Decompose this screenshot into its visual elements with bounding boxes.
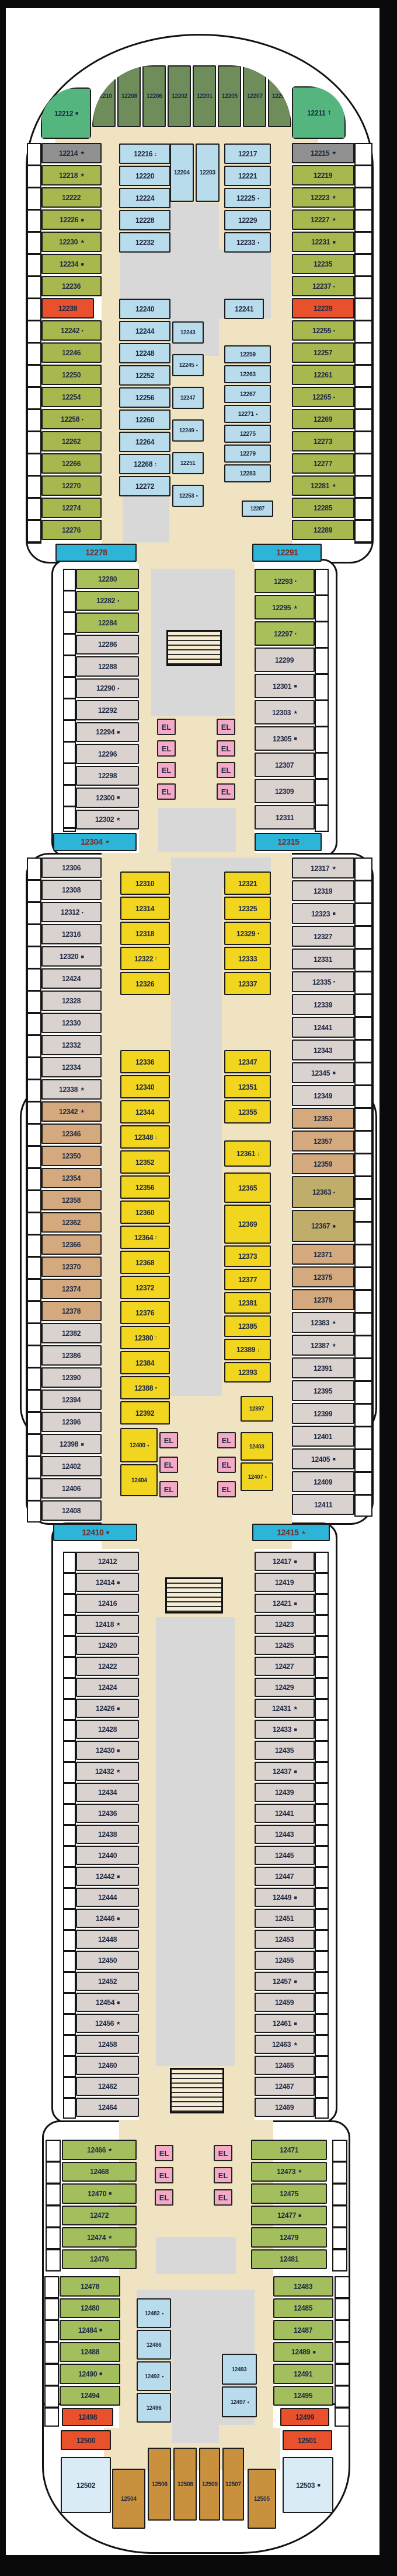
cabin-number: 12400 (130, 1442, 145, 1449)
cabin-number: 12363 (312, 1188, 331, 1196)
cabin-marker-q: ■ (117, 1748, 120, 1753)
cabin-12505: 12505 (248, 2469, 276, 2529)
cabin-number: 12344 (135, 1108, 154, 1116)
cabin-marker-s: ★ (80, 1108, 85, 1115)
cabin-12222: 12222 (41, 187, 102, 208)
cabin-marker-d: • (265, 1474, 267, 1480)
cabin-number: 12386 (62, 1351, 81, 1360)
cabin-12357: 12357 (292, 1130, 354, 1151)
cabin-marker-d: • (117, 598, 119, 604)
balcony-strip (335, 2276, 350, 2427)
cabin-number: 12221 (238, 171, 257, 180)
balcony-strip (315, 1552, 329, 2119)
cabin-12429: 12429 (255, 1678, 315, 1697)
cabin-number: 12210 (96, 93, 112, 100)
cabin-12306: 12306 (41, 857, 102, 878)
cabin-marker-s: ★ (332, 150, 336, 156)
cabin-number: 12224 (135, 194, 154, 202)
cabin-12457: 12457■ (255, 1972, 315, 1991)
cabin-12441: 12441 (255, 1804, 315, 1823)
cabin-number: 12255 (312, 326, 331, 335)
cabin-12423: 12423 (255, 1615, 315, 1634)
cabin-marker-c: : (155, 1134, 157, 1140)
corridor-fore-teal-row (137, 544, 253, 563)
cabin-marker-d: • (117, 685, 119, 691)
cabin-12477: 12477■ (251, 2206, 327, 2226)
cabin-12509: 12509 (199, 2448, 220, 2521)
cabin-12475: 12475 (251, 2183, 327, 2204)
cabin-marker-s: ★ (332, 194, 336, 201)
cabin-number: 12438 (98, 1830, 117, 1839)
stern-vert-12505: 12505 (248, 2469, 276, 2529)
cabin-12228: 12228 (119, 210, 170, 230)
cabin-12499: 12499 (280, 2408, 329, 2426)
cabin-12399: 12399 (292, 1403, 354, 1424)
elevator-icon: EL (217, 1432, 236, 1448)
cabin-12203: 12203 (196, 143, 220, 202)
mid-port-inner-a: 12310123141231812322:12326 (120, 871, 170, 995)
cabin-12386: 12386 (41, 1345, 102, 1366)
cabin-12497: 12497• (222, 2386, 257, 2417)
cabin-12298: 12298 (76, 766, 139, 786)
cabin-number: 12302 (95, 815, 114, 824)
cabin-12241: 12241 (224, 299, 264, 319)
cabin-12257: 12257 (292, 342, 354, 363)
cabin-number: 12366 (62, 1240, 81, 1249)
fore-stbd-outer: 12215★1221912223★12227★12231■1223512237•… (292, 143, 354, 540)
cabin-number: 12266 (62, 459, 81, 468)
cabin-number: 12349 (314, 1091, 332, 1100)
cabin-marker-q: ■ (106, 1529, 109, 1535)
cabin-12445: 12445 (255, 1846, 315, 1865)
frame-bottom (0, 2555, 397, 2576)
cabin-marker-s: ★ (116, 1768, 121, 1774)
cabin-12268: 12268: (119, 454, 170, 474)
cabin-number: 12410 (82, 1528, 103, 1538)
cabin-12460: 12460 (76, 2056, 139, 2075)
cabin-marker-q: ■ (109, 2190, 112, 2196)
teal-bar-12304: 12304★ (53, 833, 137, 851)
cabin-12226: 12226■ (41, 209, 102, 230)
cabin-12340: 12340 (120, 1075, 170, 1098)
cabin-number: 12485 (294, 2304, 312, 2312)
cabin-12419: 12419 (255, 1573, 315, 1592)
cabin-number: 12380 (134, 1333, 153, 1342)
cabin-number: 12325 (238, 904, 257, 913)
cabin-number: 12463 (272, 2040, 291, 2049)
cabin-12293: 12293• (255, 569, 315, 593)
cabin-12408: 12408 (41, 1500, 102, 1521)
cabin-number: 12500 (76, 2436, 95, 2445)
cabin-number: 12502 (76, 2481, 95, 2490)
elevator-icon: EL (155, 2189, 173, 2206)
cabin-12212: 12212■ (41, 87, 91, 139)
cabin-number: 12412 (98, 1557, 117, 1566)
cabin-12472: 12472 (62, 2206, 137, 2226)
fore-center-cabins: 1224312245•1224712249•1225112253• (172, 321, 204, 507)
void-mid-center (171, 888, 222, 1396)
cabin-number: 12265 (312, 393, 331, 401)
cabin-marker-d: • (196, 362, 198, 368)
cabin-12495: 12495 (273, 2386, 333, 2406)
cabin-12434: 12434 (76, 1783, 139, 1802)
cabin-marker-s: ★ (108, 2147, 113, 2153)
cabin-12321: 12321 (224, 871, 271, 895)
stern-vert-12508: 12508 (173, 2448, 197, 2521)
cabin-marker-d: • (295, 578, 297, 584)
void-midfore-lower (158, 808, 236, 852)
cabin-12415: 12415★ (252, 1524, 330, 1541)
cabin-12411: 12411 (292, 1494, 354, 1515)
cabin-marker-q: ■ (81, 217, 84, 223)
cabin-12500: 12500 (61, 2430, 111, 2450)
cabin-number: 12292 (98, 706, 117, 715)
cabin-12269: 12269 (292, 409, 354, 429)
cabin-number: 12298 (98, 771, 117, 780)
cabin-number: 12481 (280, 2255, 298, 2263)
cabin-12223: 12223★ (292, 187, 354, 208)
cabin-number: 12226 (60, 215, 78, 224)
cabin-marker-q: ■ (81, 954, 84, 960)
cabin-marker-q: ■ (99, 2327, 102, 2333)
elevator-icon: EL (157, 740, 176, 757)
cabin-12278: 12278 (55, 544, 137, 562)
cabin-marker-d: • (196, 428, 198, 433)
cabin-12316: 12316 (41, 924, 102, 944)
cabin-number: 12307 (275, 761, 294, 769)
cabin-marker-q: ■ (81, 1441, 84, 1447)
cabin-number: 12238 (58, 304, 77, 313)
stern-corner-stbd: 12503■ (283, 2457, 333, 2513)
cabin-number: 12274 (62, 503, 81, 512)
cabin-marker-q: ■ (81, 261, 84, 267)
cabin-12456: 12456★ (76, 2014, 139, 2033)
cabin-marker-s: ★ (80, 150, 85, 156)
elevator-icon: EL (217, 1457, 236, 1473)
cabin-12406: 12406 (41, 1478, 102, 1499)
fore-center-verticals: 1220412203 (170, 143, 220, 202)
cabin-12259: 12259 (224, 345, 271, 363)
cabin-number: 12342 (59, 1107, 78, 1116)
cabin-number: 12343 (314, 1046, 332, 1055)
cabin-12355: 12355 (224, 1100, 271, 1123)
cabin-number: 12378 (62, 1307, 81, 1315)
stern-vert-12504: 12504 (112, 2469, 145, 2529)
cabin-12233: 12233• (224, 232, 271, 253)
cabin-marker-q: ■ (294, 1601, 297, 1606)
cabin-number: 12408 (62, 1506, 81, 1515)
cabin-12314: 12314 (120, 897, 170, 920)
cabin-number: 12206 (147, 93, 162, 100)
cabin-12294: 12294■ (76, 722, 139, 743)
cabin-12401: 12401 (292, 1426, 354, 1447)
cabin-12216: 12216: (119, 143, 170, 164)
cabin-number: 12419 (275, 1578, 294, 1587)
cabin-marker-s: ★ (116, 816, 121, 822)
cabin-number: 12354 (62, 1174, 81, 1182)
cabin-number: 12353 (314, 1114, 332, 1123)
cabin-12395: 12395 (292, 1380, 354, 1401)
cabin-12373: 12373 (224, 1245, 271, 1267)
cabin-12378: 12378 (41, 1301, 102, 1321)
stern-corner-port: 12502 (61, 2457, 111, 2513)
cabin-12202: 12202 (168, 65, 191, 127)
cabin-12416: 12416 (76, 1594, 139, 1613)
cabin-12297: 12297• (255, 621, 315, 646)
cabin-number: 12445 (275, 1851, 294, 1860)
cabin-number: 12225 (236, 194, 255, 202)
cabin-number: 12332 (62, 1041, 81, 1049)
cabin-number: 12491 (294, 2369, 312, 2378)
cabin-number: 12401 (314, 1432, 332, 1441)
cabin-12473: 12473★ (251, 2162, 327, 2182)
fore-stbd-inner-c: 12259122631226712271•122751227912283 (224, 345, 271, 482)
cabin-12436: 12436 (76, 1804, 139, 1823)
cabin-number: 12493 (232, 2366, 247, 2373)
cabin-12459: 12459 (255, 1993, 315, 2012)
cabin-number: 12252 (135, 371, 154, 380)
cabin-number: 12488 (81, 2347, 99, 2356)
cabin-12353: 12353 (292, 1108, 354, 1129)
cabin-number: 12423 (275, 1620, 294, 1629)
cabin-number: 12427 (275, 1662, 294, 1671)
aft-stbd-suites: 1247112473★1247512477■1247912481 (251, 2140, 327, 2269)
cabin-12502: 12502 (61, 2457, 111, 2513)
cabin-number: 12264 (135, 437, 154, 446)
cabin-12333: 12333 (224, 947, 271, 970)
cabin-12328: 12328 (41, 991, 102, 1011)
cabin-number: 12234 (60, 260, 78, 268)
cabin-number: 12460 (98, 2061, 117, 2070)
elevator-icon: EL (214, 2189, 232, 2206)
cabin-number: 12504 (121, 2495, 137, 2502)
cabin-number: 12254 (62, 393, 81, 401)
cabin-number: 12357 (314, 1137, 332, 1146)
cabin-number: 12247 (180, 394, 196, 401)
fore-port-inner-b: 1224012244122481225212256122601226412268… (119, 299, 170, 496)
elevator-icon: EL (155, 2145, 173, 2161)
cabin-12237: 12237• (292, 276, 354, 296)
cabin-12245: 12245• (172, 354, 204, 376)
cabin-12290: 12290• (76, 678, 139, 699)
cabin-number: 12263 (240, 371, 256, 378)
cabin-number: 12469 (275, 2103, 294, 2112)
cabin-number: 12425 (275, 1641, 294, 1650)
cabin-12305: 12305■ (255, 726, 315, 751)
cabin-marker-c: : (155, 151, 156, 157)
cabin-marker-c: : (155, 956, 157, 961)
cabin-number: 12288 (98, 662, 117, 671)
cabin-12489: 12489■ (273, 2342, 333, 2362)
cabin-12240: 12240 (119, 299, 170, 319)
cabin-12354: 12354 (41, 1168, 102, 1188)
cabin-number: 12367 (311, 1221, 330, 1230)
cabin-number: 12273 (314, 437, 332, 446)
cabin-12453: 12453 (255, 1930, 315, 1949)
cabin-12421: 12421■ (255, 1594, 315, 1613)
cabin-12331: 12331 (292, 949, 354, 970)
cabin-number: 12503 (296, 2481, 315, 2490)
cabin-number: 12338 (59, 1085, 78, 1094)
cabin-12374: 12374 (41, 1279, 102, 1299)
cabin-12284: 12284 (76, 612, 139, 633)
cabin-12409: 12409 (292, 1471, 354, 1492)
cabin-marker-d: • (82, 909, 83, 915)
cabin-marker-q: ■ (294, 1979, 297, 1985)
cabin-number: 12256 (135, 393, 154, 402)
cabin-number: 12218 (59, 171, 78, 180)
cabin-marker-q: ■ (117, 794, 120, 800)
cabin-12439: 12439 (255, 1783, 315, 1802)
cabin-marker-q: ■ (117, 1874, 120, 1880)
cabin-12385: 12385 (224, 1315, 271, 1337)
cabin-number: 12381 (238, 1298, 257, 1307)
cabin-marker-q: ■ (117, 1706, 120, 1711)
cabin-number: 12433 (273, 1725, 291, 1734)
cabin-marker-q: ■ (294, 736, 297, 741)
cabin-number: 12376 (135, 1308, 154, 1317)
cabin-number: 12272 (135, 482, 154, 491)
mid-stbd-outer: 12317★1231912323■123271233112335•1233912… (292, 857, 354, 1515)
cabin-number: 12416 (98, 1599, 117, 1608)
cabin-number: 12235 (314, 260, 332, 268)
cabin-12303: 12303★ (255, 700, 315, 724)
cabin-number: 12251 (180, 460, 196, 467)
cabin-number: 12320 (60, 952, 78, 961)
cabin-marker-q: ■ (117, 1916, 120, 1922)
cabin-12450: 12450 (76, 1951, 139, 1970)
cabin-marker-q: ■ (313, 2349, 316, 2355)
cabin-number: 12322 (134, 954, 153, 963)
cabin-number: 12454 (96, 1998, 114, 2007)
aft-red-12500: 12500 (61, 2430, 111, 2450)
cabin-12345: 12345■ (292, 1062, 354, 1083)
cabin-number: 12211 (307, 108, 325, 117)
cabin-marker-d: • (257, 930, 259, 936)
cabin-number: 12424 (98, 1683, 117, 1692)
cabin-number: 12453 (275, 1935, 294, 1944)
cabin-number: 12337 (238, 979, 257, 988)
cabin-12437: 12437■ (255, 1762, 315, 1781)
cabin-number: 12476 (90, 2255, 109, 2263)
cabin-12273: 12273 (292, 431, 354, 452)
frame-right (379, 0, 397, 2576)
cabin-number: 12415 (277, 1528, 298, 1538)
cabin-12249: 12249• (172, 419, 204, 442)
cabin-12394: 12394 (41, 1389, 102, 1410)
cabin-12329: 12329• (224, 922, 271, 945)
aft-red-12499: 12499 (280, 2408, 329, 2426)
cabin-number: 12207 (247, 93, 263, 100)
cabin-marker-s: ★ (293, 604, 298, 611)
cabin-12455: 12455 (255, 1951, 315, 1970)
cabin-number: 12242 (61, 326, 79, 335)
cabin-12312: 12312• (41, 902, 102, 922)
cabin-number: 12310 (135, 879, 154, 888)
cabin-12435: 12435 (255, 1741, 315, 1760)
cabin-marker-d: • (257, 240, 259, 246)
cabin-number: 12402 (62, 1462, 81, 1471)
cabin-12338: 12338★ (41, 1079, 102, 1100)
cabin-number: 12377 (238, 1275, 257, 1284)
cabin-12487: 12487 (273, 2320, 333, 2340)
cabin-number: 12462 (98, 2082, 117, 2091)
cabin-12417: 12417■ (255, 1552, 315, 1571)
cabin-12242: 12242• (41, 320, 102, 341)
cabin-number: 12328 (62, 996, 81, 1005)
cabin-12418: 12418★ (76, 1615, 139, 1634)
balcony-strip (27, 857, 41, 1522)
cabin-12388: 12388• (120, 1376, 170, 1399)
bow-cabin-row: 1221012208122061220212201122051220712209 (92, 65, 291, 127)
cabin-marker-s: ★ (80, 239, 85, 245)
cabin-12352: 12352 (120, 1150, 170, 1174)
elevator-icon: EL (214, 2145, 232, 2161)
cabin-12363: 12363• (292, 1176, 354, 1208)
cabin-12381: 12381 (224, 1292, 271, 1314)
cabin-number: 12420 (98, 1641, 117, 1650)
cabin-12315: 12315 (255, 833, 322, 851)
cabin-12377: 12377 (224, 1269, 271, 1290)
cabin-number: 12372 (135, 1283, 154, 1292)
cabin-marker-c: : (155, 1234, 157, 1240)
cabin-12467: 12467 (255, 2077, 315, 2096)
cabin-marker-q: ■ (294, 1895, 297, 1901)
cabin-number: 12405 (311, 1455, 330, 1464)
cabin-number: 12384 (135, 1359, 154, 1367)
cabin-marker-d: • (295, 631, 297, 636)
cabin-12262: 12262 (41, 431, 102, 452)
mid-stbd-inner-e: 12397 (241, 1396, 273, 1422)
cabin-number: 12306 (62, 863, 81, 872)
cabin-12266: 12266 (41, 453, 102, 474)
cabin-12254: 12254 (41, 387, 102, 407)
void-aft-upper (156, 2237, 236, 2274)
cabin-number: 12448 (98, 1935, 117, 1944)
aft-port-outer: 124781248012484■1248812490■12494 (60, 2276, 120, 2406)
cabin-number: 12497 (230, 2399, 245, 2406)
cabin-number: 12494 (81, 2391, 99, 2400)
cabin-12482: 12482• (137, 2298, 171, 2328)
cabin-number: 12461 (273, 2019, 291, 2028)
cabin-12244: 12244 (119, 321, 170, 341)
cabin-number: 12471 (280, 2145, 298, 2154)
mid-port-inner-b: 12336123401234412348:1235212356123601236… (120, 1050, 170, 1424)
cabin-12367: 12367■ (292, 1210, 354, 1242)
cabin-marker-c: : (257, 1151, 259, 1157)
cabin-number: 12466 (87, 2145, 106, 2154)
cabin-marker-q: ■ (333, 1070, 336, 1076)
cabin-12238: 12238 (41, 298, 94, 318)
cabin-number: 12287 (250, 506, 264, 512)
cabin-marker-q: ■ (117, 2000, 120, 2006)
cabin-number: 12281 (311, 481, 329, 490)
elevator-icon: EL (157, 719, 176, 735)
cabin-12412: 12412 (76, 1552, 139, 1571)
cabin-12484: 12484■ (60, 2320, 120, 2340)
cabin-number: 12406 (62, 1484, 81, 1493)
cabin-12274: 12274 (41, 498, 102, 518)
stern-vert-12509: 12509 (199, 2448, 220, 2521)
cabin-number: 12308 (62, 885, 81, 894)
cabin-number: 12370 (62, 1262, 81, 1271)
cabin-number: 12340 (135, 1083, 154, 1091)
cabin-12362: 12362 (41, 1212, 102, 1233)
deck-plan: 1221012208122061220212201122051220712209… (0, 0, 397, 2576)
balcony-strip (315, 569, 329, 832)
cabin-number: 12286 (98, 640, 117, 649)
cabin-number: 12259 (240, 351, 256, 358)
